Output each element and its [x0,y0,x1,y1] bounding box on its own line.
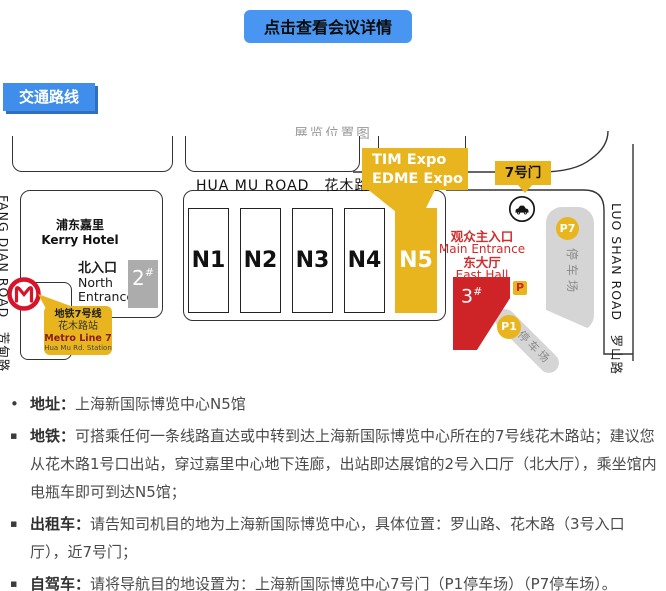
p1-parking-band: 停车场 [491,305,563,377]
list-item-taxi: ▪ 出租车：请告知司机目的地为上海新国际博览中心，具体位置：罗山路、花木路（3号… [10,510,658,566]
p7-parking-marker: P7 [556,217,579,240]
list-item-metro: ▪ 地铁：可搭乘任何一条线路直达或中转到达上海新国际博览中心所在的7号线花木路站… [10,422,658,506]
metro-line7-callout: 地铁7号线 花木路站 Metro Line 7 Hua Mu Rd. Stati… [44,306,112,355]
section-title-traffic-routes: 交通路线 [3,83,95,111]
entrance-hall-2-box: 2# [128,260,158,308]
p1-parking-marker: P1 [497,315,521,339]
shanghai-metro-icon [6,276,42,312]
city-block-northwest [12,136,173,172]
expo-name-callout: TIM Expo EDME Expo [362,148,468,190]
car-icon [508,195,536,223]
kerry-hotel-label: 浦东嘉里 Kerry Hotel [20,218,140,248]
directions-list: • 地址：上海新国际博览中心N5馆 ▪ 地铁：可搭乘任何一条线路直达或中转到达上… [10,390,658,591]
hall-n2: N2 [240,208,281,313]
list-item-driving: ▪ 自驾车：请将导航目的地设置为：上海新国际博览中心7号门（P1停车场）（P7停… [10,570,658,591]
luo-shan-road-label: LUO SHAN ROAD 罗山路 [608,203,627,375]
bullet-icon: • [10,390,30,418]
venue-location-map: 展览位置图 HUA MU ROAD 花木路 FANG DIAN ROAD 芳甸路… [0,118,666,388]
p7-parking-text: 停车场 [564,248,581,296]
hall-n5-highlighted: N5 [395,208,437,313]
gate-7-label: 7号门 [495,161,551,185]
bullet-icon: ▪ [10,422,30,506]
hall-n1: N1 [188,208,229,313]
parking-badge-icon: P [513,281,527,295]
hall-n3: N3 [292,208,333,313]
main-entrance-label: 观众主入口 Main Entrance 东大厅 East Hall [438,230,526,282]
bullet-icon: ▪ [10,510,30,566]
view-meeting-details-button[interactable]: 点击查看会议详情 [244,10,412,43]
hua-mu-road-label: HUA MU ROAD 花木路 [196,175,369,195]
bullet-icon: ▪ [10,570,30,591]
list-item-address: • 地址：上海新国际博览中心N5馆 [10,390,658,418]
hall-n4: N4 [344,208,385,313]
north-entrance-label: 北入口 North Entrance [78,262,134,304]
page: 点击查看会议详情 交通路线 展览位置图 HUA MU ROAD 花木路 FANG… [0,0,666,591]
city-block-north-center [185,136,360,172]
